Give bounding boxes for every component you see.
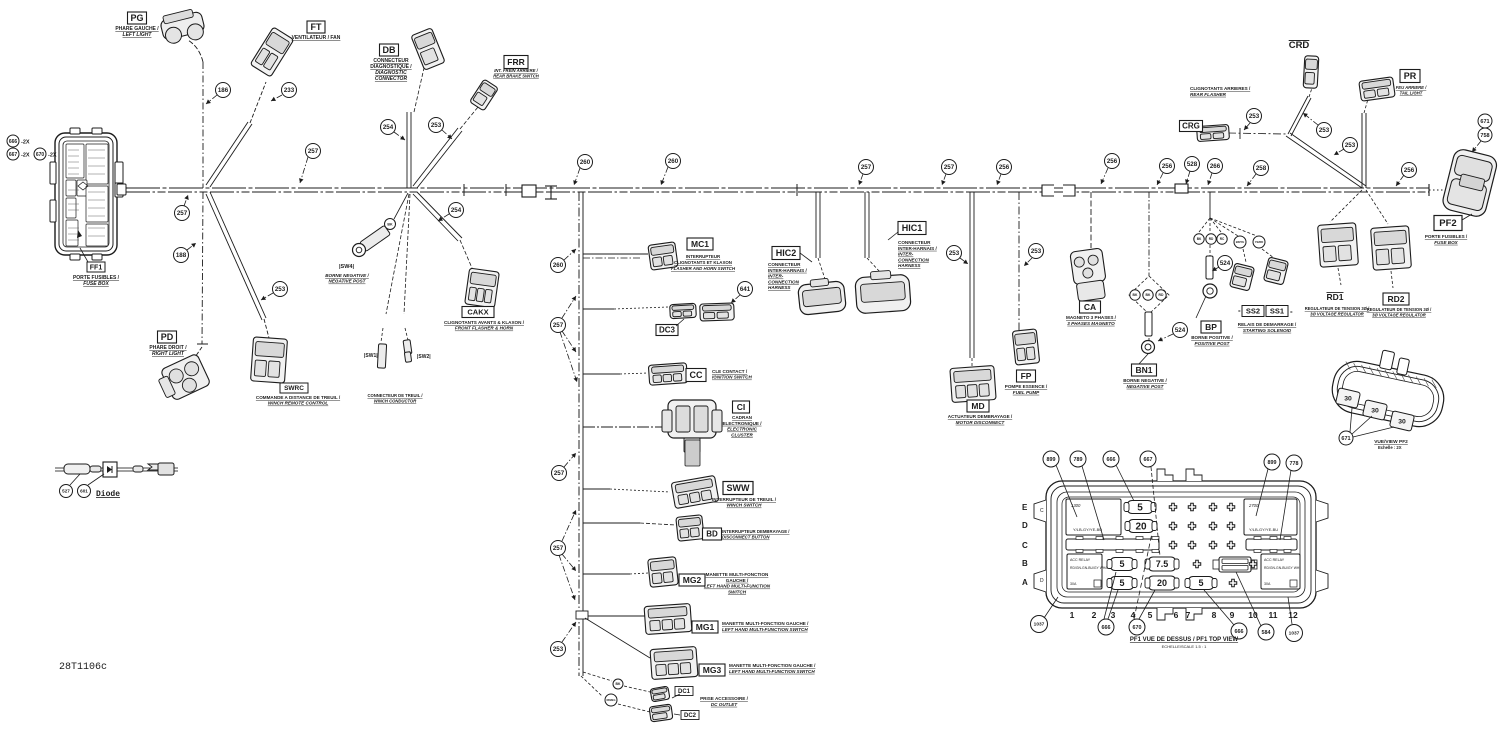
svg-text:SS1: SS1 (1270, 307, 1284, 316)
svg-text:CONNECTEUR: CONNECTEUR (768, 262, 801, 267)
svg-text:Diode: Diode (96, 490, 120, 499)
svg-text:BORNE POSITIVE /: BORNE POSITIVE / (1191, 335, 1233, 340)
svg-text:7: 7 (1186, 610, 1191, 620)
svg-text:-: - (1290, 307, 1293, 316)
svg-text:INTER-: INTER- (768, 274, 784, 279)
svg-text:253: 253 (275, 286, 286, 293)
svg-text:186: 186 (218, 87, 229, 94)
svg-text:LEFT HAND MULTI-FUNCTION SWITC: LEFT HAND MULTI-FUNCTION SWITCH (722, 627, 808, 632)
svg-text:257: 257 (553, 322, 564, 329)
svg-text:30A: 30A (1070, 582, 1077, 586)
svg-text:PF1 VUE DE DESSUS / PF1 TOP VI: PF1 VUE DE DESSUS / PF1 TOP VIEW (1130, 637, 1238, 643)
svg-text:BK: BK (1197, 237, 1202, 241)
svg-text:D: D (1022, 521, 1028, 530)
svg-text:10: 10 (1248, 610, 1258, 620)
svg-text:RD/GN-GN-BU/GY WH/BK: RD/GN-GN-BU/GY WH/BK (1070, 566, 1112, 570)
svg-text:A: A (1022, 578, 1028, 587)
svg-text:MANETTE MULTI-FONCTION: MANETTE MULTI-FONCTION (706, 572, 769, 577)
svg-text:INTERRUPTEUR: INTERRUPTEUR (686, 254, 721, 259)
svg-text:260: 260 (668, 158, 679, 165)
svg-text:ACC RELAY: ACC RELAY (1070, 558, 1091, 562)
svg-text:RD/GN-GN-BU/GY WH: RD/GN-GN-BU/GY WH (1264, 566, 1300, 570)
svg-text:ACC RELAY: ACC RELAY (1264, 558, 1285, 562)
svg-text:28T1106c: 28T1106c (59, 662, 107, 673)
svg-text:MANETTE MULTI-FONCTION GAUCHE: MANETTE MULTI-FONCTION GAUCHE / (722, 621, 809, 626)
svg-text:RD: RD (1209, 237, 1214, 241)
svg-text:REGULATEUR DE TENSION 3Ø /: REGULATEUR DE TENSION 3Ø / (1367, 307, 1432, 312)
svg-text:SWRC: SWRC (284, 385, 304, 392)
svg-text:257: 257 (308, 148, 319, 155)
svg-text:188: 188 (176, 252, 187, 259)
svg-text:1037: 1037 (1289, 631, 1300, 637)
svg-text:899: 899 (1047, 457, 1056, 463)
svg-text:CRD: CRD (1289, 40, 1310, 51)
svg-text:BN1: BN1 (1135, 365, 1152, 375)
svg-text:7.5: 7.5 (1156, 559, 1169, 569)
svg-text:FRR: FRR (507, 57, 524, 67)
svg-text:667: 667 (9, 152, 18, 158)
svg-text:PD: PD (161, 332, 174, 342)
svg-text:30: 30 (1344, 396, 1352, 403)
svg-text:NEGATIVE POST: NEGATIVE POST (329, 279, 367, 284)
svg-text:758: 758 (1480, 133, 1489, 139)
svg-text:C: C (1040, 508, 1044, 514)
svg-text:INT. FREIN ARRIERE /: INT. FREIN ARRIERE / (494, 68, 538, 73)
svg-text:Echelle : 2X: Echelle : 2X (1378, 445, 1402, 450)
svg-text:256: 256 (999, 164, 1010, 171)
svg-text:|SW4|: |SW4| (339, 264, 354, 270)
svg-text:MOTOR DISCONNECT: MOTOR DISCONNECT (956, 420, 1006, 425)
svg-text:DISCONNECT BUTTON: DISCONNECT BUTTON (722, 535, 770, 540)
svg-text:BK: BK (1133, 293, 1138, 297)
svg-text:ACTUATEUR DEMBRAYAGE /: ACTUATEUR DEMBRAYAGE / (948, 414, 1013, 419)
svg-text:641: 641 (740, 286, 751, 293)
svg-text:MG3: MG3 (703, 665, 722, 675)
svg-text:BK: BK (616, 682, 621, 686)
svg-text:2700: 2700 (1248, 503, 1259, 508)
svg-text:YE/RD: YE/RD (1255, 240, 1264, 244)
svg-text:BK: BK (1146, 293, 1151, 297)
svg-text:CONNECTION: CONNECTION (768, 279, 800, 284)
svg-text:666: 666 (1102, 625, 1111, 631)
svg-text:WINCH CONDUCTOR: WINCH CONDUCTOR (374, 398, 417, 403)
svg-text:CLIGNOTANTS ARRIERES /: CLIGNOTANTS ARRIERES / (1190, 86, 1251, 91)
svg-text:NEGATIVE POST: NEGATIVE POST (1127, 384, 1165, 389)
svg-text:BK: BK (387, 222, 393, 226)
svg-text:BD: BD (706, 530, 718, 539)
svg-text:670: 670 (1133, 625, 1142, 631)
svg-text:MG1: MG1 (696, 622, 715, 632)
svg-text:RELAIS DE DEMARRAGE /: RELAIS DE DEMARRAGE / (1238, 322, 1297, 327)
svg-text:POSITIVE POST: POSITIVE POST (1195, 341, 1231, 346)
svg-text:VENTILATEUR / FAN: VENTILATEUR / FAN (292, 35, 341, 41)
svg-text:|SW1|: |SW1| (364, 353, 378, 359)
svg-text:3: 3 (1111, 610, 1116, 620)
svg-text:671: 671 (1341, 436, 1350, 442)
svg-text:SS2: SS2 (1246, 307, 1260, 316)
svg-text:CA: CA (1084, 302, 1096, 312)
svg-text:CONNECTEUR: CONNECTEUR (898, 240, 931, 245)
svg-text:BORNE NEGATIVE /: BORNE NEGATIVE / (325, 273, 369, 278)
svg-text:LEFT HAND MULTI-FUNCTION SWITC: LEFT HAND MULTI-FUNCTION SWITCH (729, 669, 815, 674)
svg-text:RIGHT LIGHT: RIGHT LIGHT (152, 351, 185, 357)
svg-text:667: 667 (1144, 457, 1153, 463)
svg-text:253: 253 (949, 250, 960, 257)
svg-text:DB: DB (383, 45, 396, 55)
svg-text:MC1: MC1 (691, 239, 709, 249)
svg-text:PR: PR (1404, 71, 1417, 81)
svg-text:CADRAN: CADRAN (732, 415, 753, 420)
svg-text:524: 524 (1175, 327, 1186, 334)
svg-text:253: 253 (1249, 113, 1260, 120)
svg-text:FUEL PUMP: FUEL PUMP (1013, 390, 1040, 395)
svg-text:LEFT HAND MULTI-FUNCTION: LEFT HAND MULTI-FUNCTION (704, 584, 771, 589)
svg-text:-2X: -2X (21, 153, 30, 159)
svg-text:258: 258 (1256, 165, 1267, 172)
svg-text:3Ø VOLTAGE REGULATOR: 3Ø VOLTAGE REGULATOR (1372, 312, 1426, 317)
svg-text:REAR FLASHER: REAR FLASHER (1190, 92, 1227, 97)
svg-text:DC2: DC2 (684, 713, 697, 719)
svg-text:RD1: RD1 (1326, 292, 1343, 302)
svg-text:11: 11 (1269, 610, 1278, 620)
svg-text:778: 778 (1290, 461, 1299, 467)
svg-text:CRG: CRG (1182, 122, 1200, 131)
svg-text:INTER-: INTER- (898, 252, 914, 257)
svg-text:LEFT LIGHT: LEFT LIGHT (123, 32, 153, 38)
svg-text:FLASHER AND HORN SWITCH: FLASHER AND HORN SWITCH (671, 266, 736, 271)
svg-text:ECHELLE/SCALE 1.5 : 1: ECHELLE/SCALE 1.5 : 1 (1162, 644, 1207, 649)
svg-text:666: 666 (1235, 629, 1244, 635)
svg-text:FUSE BOX: FUSE BOX (1434, 240, 1458, 245)
svg-text:20: 20 (1135, 522, 1147, 533)
svg-text:E: E (1022, 503, 1028, 512)
svg-text:30: 30 (1398, 419, 1406, 426)
svg-text:MD: MD (971, 401, 984, 411)
svg-text:260: 260 (580, 159, 591, 166)
svg-text:DC OUTLET: DC OUTLET (711, 702, 738, 707)
svg-text:INTER-HARNAIS /: INTER-HARNAIS / (898, 246, 938, 251)
svg-text:8: 8 (1212, 610, 1217, 620)
svg-text:TAIL LIGHT: TAIL LIGHT (1400, 90, 1423, 95)
svg-text:SWW: SWW (727, 483, 750, 493)
svg-text:256: 256 (1162, 163, 1173, 170)
svg-text:CONNECTEUR DE TREUIL /: CONNECTEUR DE TREUIL / (367, 393, 423, 398)
svg-text:30A: 30A (1264, 582, 1271, 586)
svg-text:CLIGNOTANTS ET KLAXON: CLIGNOTANTS ET KLAXON (674, 260, 732, 265)
svg-text:5: 5 (1148, 610, 1153, 620)
svg-text:PORTE FUSIBLES /: PORTE FUSIBLES / (1425, 234, 1468, 239)
svg-text:CLUSTER: CLUSTER (731, 432, 753, 437)
svg-text:PF2: PF2 (1439, 218, 1456, 229)
svg-text:CC: CC (690, 370, 703, 380)
svg-text:253: 253 (1345, 142, 1356, 149)
svg-text:528: 528 (1187, 161, 1198, 168)
svg-text:INTERRUPTEUR DEMBRAYAGE /: INTERRUPTEUR DEMBRAYAGE / (722, 529, 790, 534)
svg-text:HIC1: HIC1 (902, 223, 923, 233)
svg-text:12: 12 (1288, 610, 1298, 620)
svg-text:256: 256 (1404, 167, 1415, 174)
svg-text:254: 254 (383, 124, 394, 131)
svg-text:REGULATEUR DE TENSION 3Ø /: REGULATEUR DE TENSION 3Ø / (1305, 306, 1370, 311)
svg-text:IGNITION SWITCH: IGNITION SWITCH (712, 375, 752, 380)
svg-text:CONNECTION: CONNECTION (898, 257, 930, 262)
svg-text:C: C (1022, 541, 1028, 550)
svg-text:254: 254 (451, 207, 462, 214)
svg-text:FP: FP (1021, 371, 1032, 381)
svg-text:5: 5 (1198, 578, 1203, 588)
svg-text:PRISE ACCESSOIRE /: PRISE ACCESSOIRE / (700, 696, 749, 701)
svg-text:260: 260 (553, 262, 564, 269)
svg-text:B: B (1022, 559, 1028, 568)
svg-text:COMMANDE A DISTANCE DE TREUIL: COMMANDE A DISTANCE DE TREUIL / (256, 395, 341, 400)
svg-text:FT: FT (311, 22, 322, 32)
svg-text:WINCH SWITCH: WINCH SWITCH (727, 503, 763, 508)
svg-text:GAUCHE /: GAUCHE / (726, 578, 749, 583)
svg-text:RC: RC (1220, 237, 1225, 241)
svg-text:BORNE NEGATIVE /: BORNE NEGATIVE / (1123, 378, 1167, 383)
svg-text:257: 257 (861, 164, 872, 171)
svg-text:SWITCH: SWITCH (728, 589, 747, 594)
svg-text:1037: 1037 (1034, 622, 1045, 628)
svg-text:253: 253 (431, 122, 442, 129)
svg-text:REAR BRAKE SWITCH: REAR BRAKE SWITCH (493, 73, 540, 78)
svg-text:253: 253 (1031, 248, 1042, 255)
svg-text:POMPE ESSENCE /: POMPE ESSENCE / (1005, 384, 1048, 389)
svg-text:601: 601 (80, 489, 88, 494)
svg-text:D: D (1040, 578, 1044, 584)
svg-text:BR/YE: BR/YE (1236, 240, 1245, 244)
svg-text:FEU ARRIERE /: FEU ARRIERE / (1396, 85, 1427, 90)
svg-text:CI: CI (737, 402, 746, 412)
svg-text:ELECTRONIC: ELECTRONIC (727, 427, 758, 432)
svg-text:253: 253 (553, 646, 564, 653)
svg-text:527: 527 (62, 489, 70, 494)
svg-text:DC3: DC3 (659, 326, 676, 335)
svg-text:666: 666 (9, 139, 18, 145)
svg-text:RD2: RD2 (1387, 294, 1404, 304)
svg-text:Y/LB-GY/YE-BU: Y/LB-GY/YE-BU (1073, 527, 1102, 532)
svg-text:584: 584 (1262, 630, 1271, 636)
svg-text:BP: BP (1205, 322, 1217, 332)
svg-text:2: 2 (1092, 610, 1097, 620)
svg-text:1: 1 (1070, 610, 1075, 620)
svg-text:RD/BG: RD/BG (606, 698, 615, 702)
svg-text:257: 257 (177, 210, 188, 217)
svg-text:CAKX: CAKX (467, 308, 488, 317)
svg-text:HARNESS: HARNESS (768, 285, 791, 290)
svg-text:FRONT FLASHER & HORN: FRONT FLASHER & HORN (455, 326, 514, 331)
svg-text:-2X: -2X (21, 140, 30, 146)
svg-text:FF1: FF1 (90, 264, 103, 271)
svg-text:5: 5 (1119, 559, 1124, 569)
svg-text:899: 899 (1268, 460, 1277, 466)
svg-text:INTER-HARNAIS /: INTER-HARNAIS / (768, 268, 808, 273)
svg-text:HARNESS: HARNESS (898, 263, 921, 268)
svg-text:INTERRUPTEUR DE TREUIL /: INTERRUPTEUR DE TREUIL / (712, 497, 777, 502)
svg-text:STARTING SOLENOID: STARTING SOLENOID (1243, 328, 1292, 333)
svg-text:20: 20 (1157, 578, 1167, 588)
svg-text:ELECTRONIQUE /: ELECTRONIQUE / (722, 421, 762, 426)
svg-text:9: 9 (1230, 610, 1235, 620)
svg-text:5: 5 (1137, 503, 1143, 514)
svg-text:|SW2|: |SW2| (417, 354, 431, 360)
svg-text:MANETTE MULTI-FONCTION GAUCHE: MANETTE MULTI-FONCTION GAUCHE / (729, 663, 816, 668)
svg-text:PG: PG (130, 13, 143, 23)
svg-text:-: - (1238, 306, 1241, 315)
svg-text:3Ø VOLTAGE REGULATOR: 3Ø VOLTAGE REGULATOR (1310, 311, 1364, 316)
svg-text:256: 256 (1107, 158, 1118, 165)
svg-text:CLE CONTACT /: CLE CONTACT / (712, 369, 748, 374)
svg-text:6: 6 (1174, 610, 1179, 620)
svg-text:CONNECTOR: CONNECTOR (375, 76, 408, 82)
svg-text:253: 253 (1319, 127, 1330, 134)
svg-text:257: 257 (553, 545, 564, 552)
svg-text:233: 233 (284, 87, 295, 94)
svg-text:257: 257 (944, 164, 955, 171)
svg-text:CLIGNOTANTS AVANTS & KLAXON /: CLIGNOTANTS AVANTS & KLAXON / (444, 320, 525, 325)
svg-text:-2X: -2X (48, 153, 57, 159)
svg-text:30: 30 (1371, 408, 1379, 415)
svg-text:257: 257 (554, 470, 565, 477)
svg-text:5: 5 (1119, 578, 1124, 588)
svg-text:RD: RD (1159, 293, 1164, 297)
svg-text:MG2: MG2 (683, 575, 702, 585)
svg-text:524: 524 (1220, 260, 1231, 267)
svg-text:3 PHASES MAGNETO: 3 PHASES MAGNETO (1067, 321, 1115, 326)
svg-text:666: 666 (1107, 457, 1116, 463)
svg-text:266: 266 (1210, 163, 1221, 170)
svg-text:MAGNETO 3 PHASES /: MAGNETO 3 PHASES / (1066, 315, 1117, 320)
svg-text:FUSE BOX: FUSE BOX (83, 281, 109, 287)
svg-text:Y/LB-GY/YE-BU: Y/LB-GY/YE-BU (1249, 527, 1278, 532)
svg-text:789: 789 (1074, 457, 1083, 463)
svg-text:HIC2: HIC2 (776, 248, 797, 258)
svg-text:WINCH REMOTE CONTROL: WINCH REMOTE CONTROL (268, 401, 329, 406)
svg-text:670: 670 (36, 152, 45, 158)
svg-text:671: 671 (1480, 119, 1489, 125)
